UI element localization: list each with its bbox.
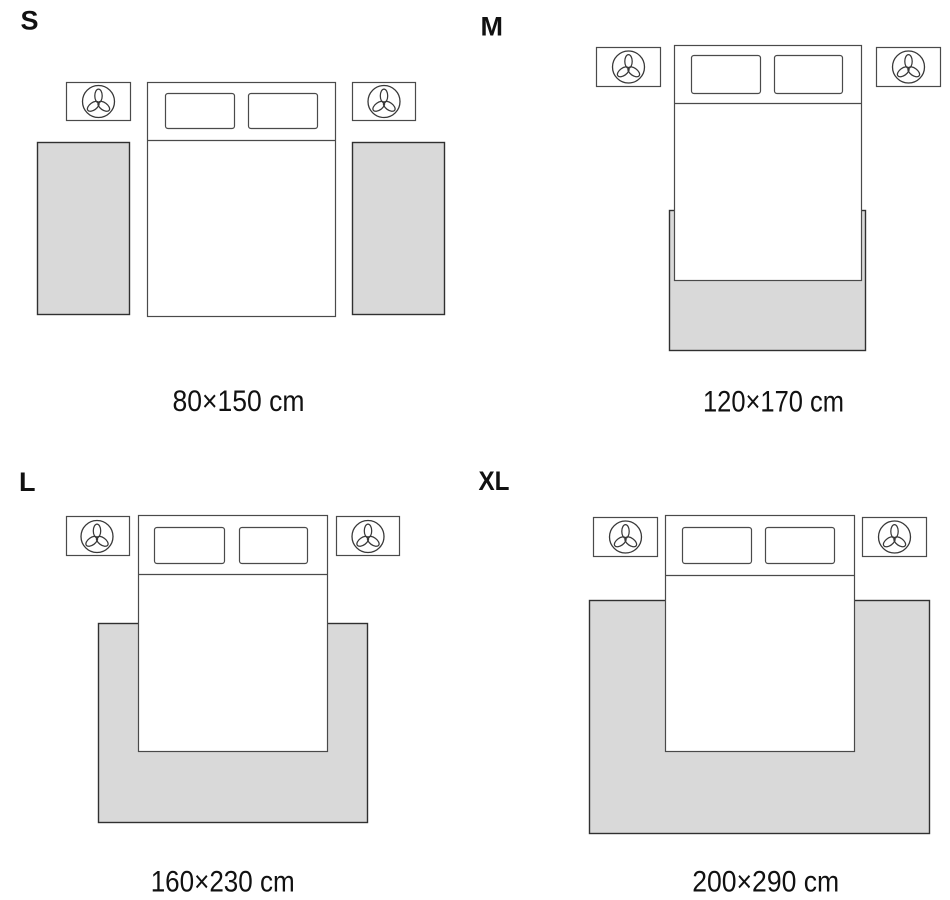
svg-text:200×290 cm: 200×290 cm xyxy=(692,866,839,899)
svg-text:S: S xyxy=(21,6,39,36)
svg-text:80×150 cm: 80×150 cm xyxy=(173,385,305,418)
svg-text:XL: XL xyxy=(479,466,510,496)
svg-text:L: L xyxy=(19,467,36,497)
svg-text:M: M xyxy=(481,12,504,42)
svg-text:120×170 cm: 120×170 cm xyxy=(703,385,844,418)
svg-text:160×230 cm: 160×230 cm xyxy=(151,866,295,899)
